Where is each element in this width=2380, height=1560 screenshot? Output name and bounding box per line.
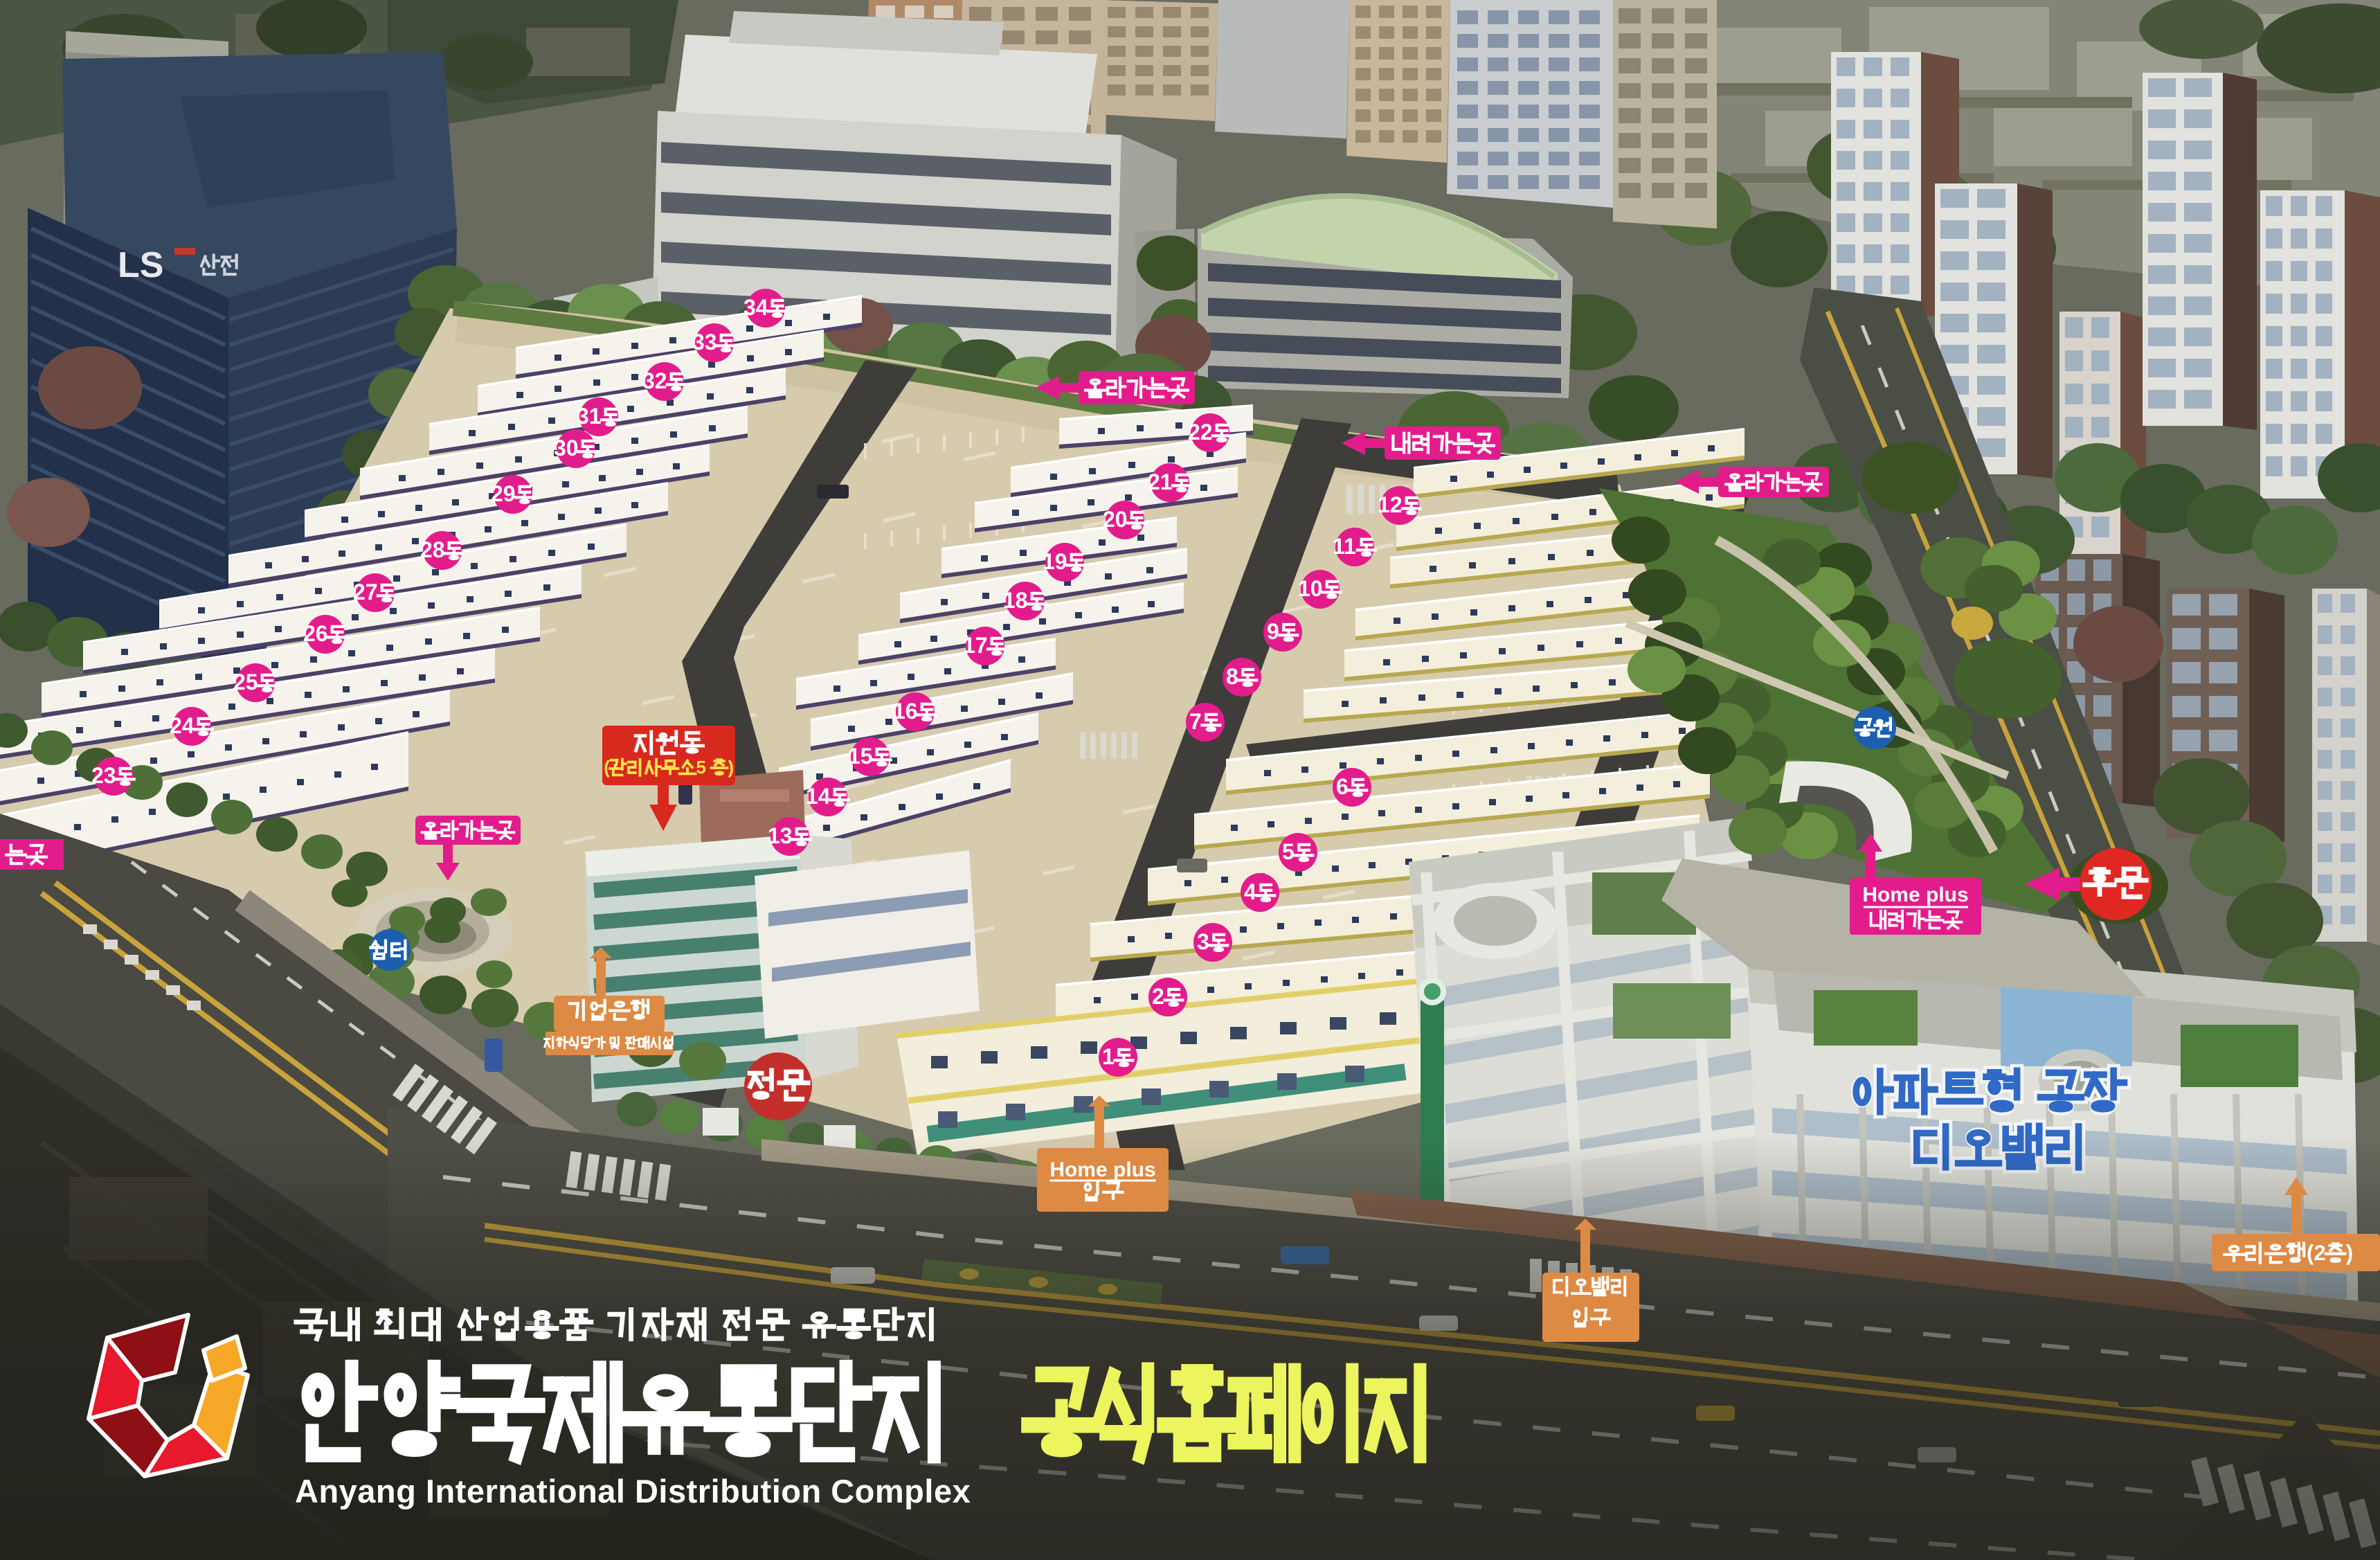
svg-text:8: 8	[1226, 664, 1238, 689]
svg-text:(: (	[604, 757, 610, 778]
svg-text:32: 32	[642, 368, 667, 393]
svg-text:5: 5	[696, 757, 706, 778]
svg-text:3: 3	[1197, 929, 1209, 954]
svg-text:30: 30	[554, 436, 579, 460]
svg-text:): )	[2346, 1241, 2353, 1265]
svg-text:22: 22	[1188, 420, 1213, 445]
svg-text:6: 6	[1336, 774, 1349, 799]
svg-text:23: 23	[91, 763, 116, 788]
svg-text:28: 28	[420, 537, 445, 562]
svg-text:33: 33	[692, 330, 717, 355]
svg-text:10: 10	[1298, 576, 1323, 601]
svg-text:34: 34	[743, 295, 768, 320]
svg-text:21: 21	[1148, 469, 1173, 494]
svg-text:7: 7	[1189, 709, 1202, 734]
svg-text:2: 2	[1152, 984, 1164, 1009]
svg-text:): )	[728, 757, 734, 778]
svg-text:LS: LS	[118, 245, 163, 285]
svg-text:5: 5	[1282, 839, 1295, 864]
svg-text:9: 9	[1267, 619, 1279, 644]
svg-text:19: 19	[1043, 549, 1067, 574]
svg-text:16: 16	[893, 699, 918, 724]
svg-text:14: 14	[806, 784, 831, 809]
svg-text:4: 4	[1244, 879, 1256, 904]
svg-text:1: 1	[1102, 1044, 1115, 1069]
svg-text:24: 24	[170, 713, 195, 738]
svg-text:18: 18	[1003, 588, 1028, 613]
svg-text:17: 17	[963, 633, 988, 658]
svg-text:Home plus: Home plus	[1862, 884, 1968, 906]
svg-text:29: 29	[491, 481, 516, 506]
svg-text:13: 13	[768, 823, 793, 848]
svg-text:20: 20	[1103, 507, 1128, 532]
svg-text:26: 26	[303, 621, 328, 646]
svg-text:31: 31	[577, 404, 602, 429]
svg-text:(2: (2	[2307, 1241, 2326, 1265]
svg-text:25: 25	[233, 670, 258, 694]
svg-text:12: 12	[1378, 492, 1403, 517]
svg-text:11: 11	[1333, 534, 1356, 559]
svg-text:Anyang International Distribut: Anyang International Distribution Comple…	[295, 1473, 971, 1509]
svg-text:27: 27	[353, 580, 378, 604]
svg-text:15: 15	[848, 744, 873, 769]
svg-text:Home plus: Home plus	[1049, 1158, 1155, 1181]
